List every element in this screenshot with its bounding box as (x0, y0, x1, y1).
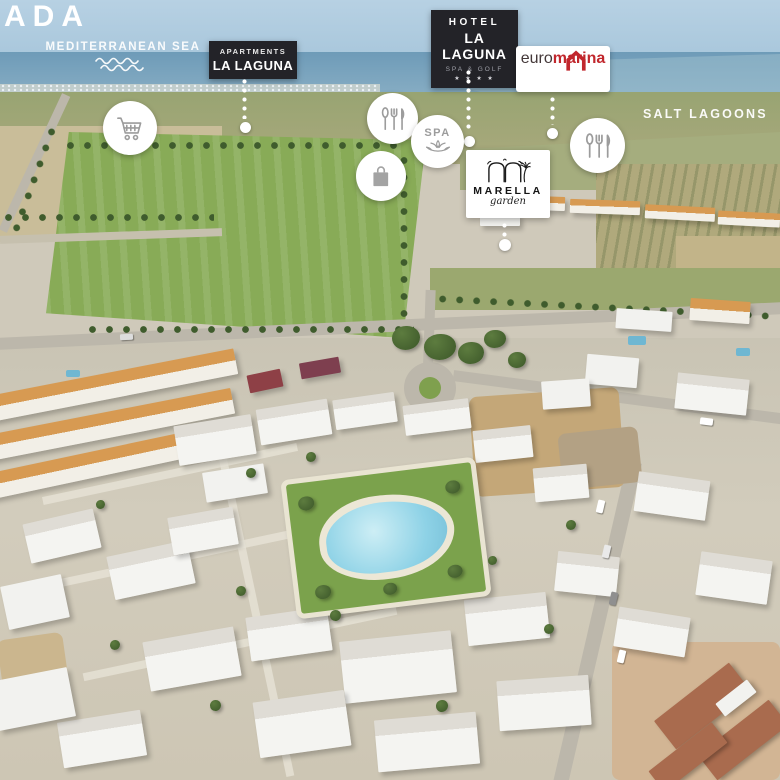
shopping-marker (356, 151, 406, 201)
palm-tree (314, 584, 332, 600)
restaurant-cutlery-icon (379, 105, 407, 133)
sea-label: MEDITERRANEAN SEA (42, 41, 204, 53)
connector-line (550, 95, 555, 125)
house-outline-icon (563, 50, 589, 72)
swimming-pool (322, 495, 452, 579)
restaurant-cutlery-icon (583, 131, 613, 161)
small-pool (736, 348, 750, 356)
community-garden (280, 457, 492, 620)
building (374, 712, 480, 773)
small-pool (66, 370, 80, 377)
arches-palm-icon (478, 155, 538, 183)
building (472, 425, 533, 463)
spa-marker: SPA (411, 115, 464, 168)
location-dot (464, 136, 475, 147)
waves-icon (94, 55, 148, 73)
shopping-cart-icon (115, 114, 145, 142)
palm-tree (447, 564, 463, 579)
logo-subtitle: garden (490, 197, 526, 206)
marella-garden-logo: MARELLA garden (466, 150, 550, 218)
promo-aerial-map: ADA MEDITERRANEAN SEA SALT LAGOONS APART… (0, 0, 780, 780)
spa-lotus-icon (424, 139, 452, 155)
building (615, 308, 672, 332)
pool-deck (314, 487, 459, 587)
badge-line1: HOTEL (434, 17, 515, 28)
building (533, 464, 590, 503)
building (464, 592, 550, 646)
palm-tree (297, 496, 315, 512)
location-dot (547, 128, 558, 139)
connector-line (502, 221, 507, 238)
spa-label: SPA (424, 128, 450, 139)
palm-tree (383, 582, 398, 596)
building (689, 298, 750, 324)
connector-line (242, 77, 247, 119)
car (120, 334, 133, 341)
location-dot (240, 122, 251, 133)
badge-line3: SPA & GOLF (434, 66, 515, 73)
badge-line1: APARTMENTS (212, 47, 294, 56)
building (674, 372, 749, 415)
brand-word-euro: euro (521, 50, 553, 67)
watermark-text: ADA (4, 0, 90, 34)
building (541, 378, 591, 409)
palm-tree (445, 480, 461, 495)
small-pool (628, 336, 646, 345)
building (496, 675, 591, 731)
building (554, 551, 620, 597)
badge-line2: LA LAGUNA (212, 58, 294, 73)
palm-row (0, 212, 214, 223)
supermarket-marker (103, 101, 157, 155)
badge-line2: LA LAGUNA (434, 30, 515, 62)
building (570, 199, 640, 215)
shopping-bag-icon (368, 163, 394, 189)
badge-stars: ★ ★ ★ ★ (434, 75, 515, 82)
building (585, 354, 639, 388)
connector-line (466, 68, 471, 132)
roundabout-green (419, 377, 441, 399)
location-dot (499, 239, 511, 251)
euromarina-badge: euromarina (516, 46, 610, 92)
building (339, 630, 457, 703)
car (700, 417, 714, 426)
hotel-la-laguna-badge: HOTEL LA LAGUNA SPA & GOLF ★ ★ ★ ★ (431, 10, 518, 88)
salt-lagoons-label: SALT LAGOONS (643, 107, 768, 121)
apartments-la-laguna-badge: APARTMENTS LA LAGUNA (209, 41, 297, 79)
restaurant-marker (570, 118, 625, 173)
palm-row (84, 324, 414, 334)
